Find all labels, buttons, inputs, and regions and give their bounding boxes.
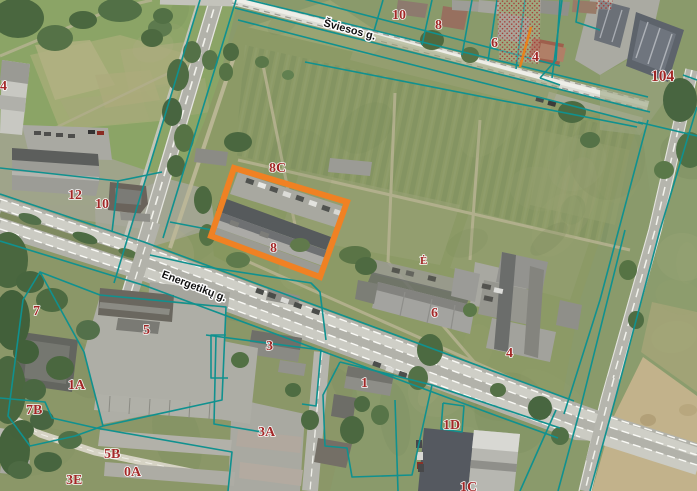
svg-text:3: 3	[266, 339, 273, 354]
svg-text:1: 1	[361, 376, 368, 391]
svg-text:4: 4	[0, 79, 7, 94]
svg-text:6: 6	[431, 306, 438, 321]
svg-text:3E: 3E	[66, 473, 82, 488]
svg-text:7: 7	[33, 304, 40, 319]
svg-text:0A: 0A	[124, 465, 142, 480]
svg-text:8: 8	[435, 18, 442, 33]
svg-text:104: 104	[651, 68, 675, 85]
svg-text:8C: 8C	[269, 161, 286, 176]
svg-text:Ė: Ė	[420, 255, 427, 267]
svg-text:8: 8	[270, 241, 277, 256]
svg-text:7B: 7B	[26, 403, 42, 418]
svg-text:6: 6	[491, 36, 498, 51]
svg-text:5B: 5B	[104, 447, 120, 462]
svg-text:4: 4	[506, 346, 513, 361]
svg-text:4: 4	[532, 50, 539, 65]
svg-text:1A: 1A	[68, 378, 86, 393]
svg-text:1D: 1D	[443, 418, 460, 433]
svg-text:12: 12	[68, 188, 82, 203]
svg-text:10: 10	[95, 197, 109, 212]
svg-text:3A: 3A	[258, 425, 276, 440]
svg-text:1C: 1C	[460, 480, 477, 491]
svg-text:5: 5	[143, 323, 150, 338]
svg-text:10: 10	[392, 8, 406, 23]
